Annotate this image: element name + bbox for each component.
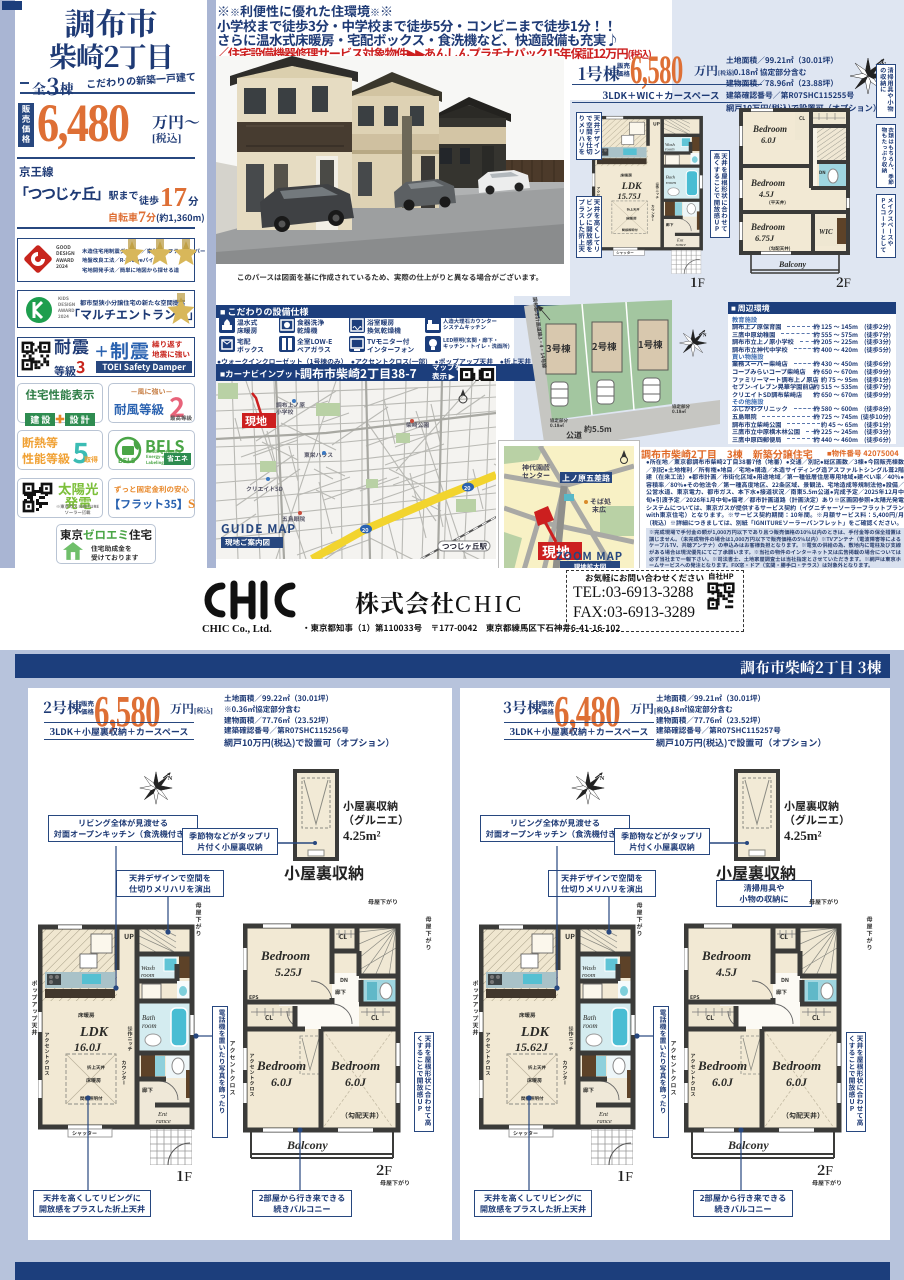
svg-text:0.18㎡: 0.18㎡ [550, 423, 564, 429]
svg-text:床暖房: 床暖房 [620, 173, 632, 179]
svg-text:小学校: 小学校 [276, 407, 294, 416]
svg-text:Balcony: Balcony [778, 260, 807, 269]
svg-text:BELS: BELS [118, 456, 136, 466]
svg-text:間接照明付: 間接照明付 [622, 227, 638, 232]
svg-text:rance: rance [676, 242, 686, 247]
svg-text:4.5J: 4.5J [758, 189, 775, 199]
svg-text:6.75J: 6.75J [755, 233, 775, 243]
svg-text:クリエイトSD: クリエイトSD [246, 484, 283, 493]
svg-text:東栄ハウス: 東栄ハウス [304, 450, 333, 459]
svg-text:N: N [168, 775, 173, 782]
svg-text:操作ニッチ: 操作ニッチ [654, 182, 659, 200]
svg-text:(平天井): (平天井) [769, 200, 786, 206]
svg-text:2号棟: 2号棟 [592, 339, 617, 353]
svg-text:6.0J: 6.0J [761, 135, 777, 145]
svg-text:N: N [600, 775, 605, 782]
svg-text:Bedroom: Bedroom [750, 222, 785, 232]
svg-text:UP: UP [653, 121, 660, 128]
svg-text:20: 20 [464, 484, 471, 492]
svg-text:現地ご案内図: 現地ご案内図 [225, 537, 270, 548]
svg-text:センター: センター [522, 471, 550, 481]
svg-text:シャッター: シャッター [616, 250, 634, 255]
svg-text:床暖房: 床暖房 [626, 215, 637, 220]
svg-text:(勾配天井): (勾配天井) [769, 246, 791, 252]
svg-text:room: room [666, 181, 677, 186]
svg-text:WIC: WIC [819, 228, 833, 236]
svg-text:N: N [703, 332, 707, 338]
svg-text:上ノ原五差路: 上ノ原五差路 [562, 473, 610, 484]
svg-text:1号棟: 1号棟 [638, 337, 663, 351]
svg-text:0.18㎡: 0.18㎡ [672, 409, 686, 415]
svg-text:3号棟: 3号棟 [546, 341, 571, 355]
svg-text:Bedroom: Bedroom [750, 178, 785, 188]
svg-text:DN: DN [819, 170, 826, 176]
svg-text:Bedroom: Bedroom [752, 124, 787, 134]
svg-text:末広: 末広 [592, 505, 606, 515]
svg-text:15.75J: 15.75J [618, 192, 642, 201]
svg-text:柴崎公園: 柴崎公園 [406, 420, 429, 429]
svg-text:約5.5m: 約5.5m [584, 424, 612, 435]
svg-text:Bath: Bath [666, 176, 676, 181]
svg-text:廊下: 廊下 [666, 222, 674, 228]
svg-text:折上天井: 折上天井 [627, 207, 640, 212]
svg-text:現地: 現地 [245, 413, 267, 429]
svg-text:LDK: LDK [621, 181, 643, 192]
svg-text:GUIDE MAP: GUIDE MAP [221, 520, 296, 537]
svg-text:CL: CL [799, 115, 805, 122]
svg-text:つつじヶ丘駅: つつじヶ丘駅 [442, 541, 487, 552]
svg-text:room: room [665, 147, 675, 152]
svg-text:カウンター: カウンター [650, 205, 655, 222]
svg-text:20: 20 [362, 526, 369, 534]
